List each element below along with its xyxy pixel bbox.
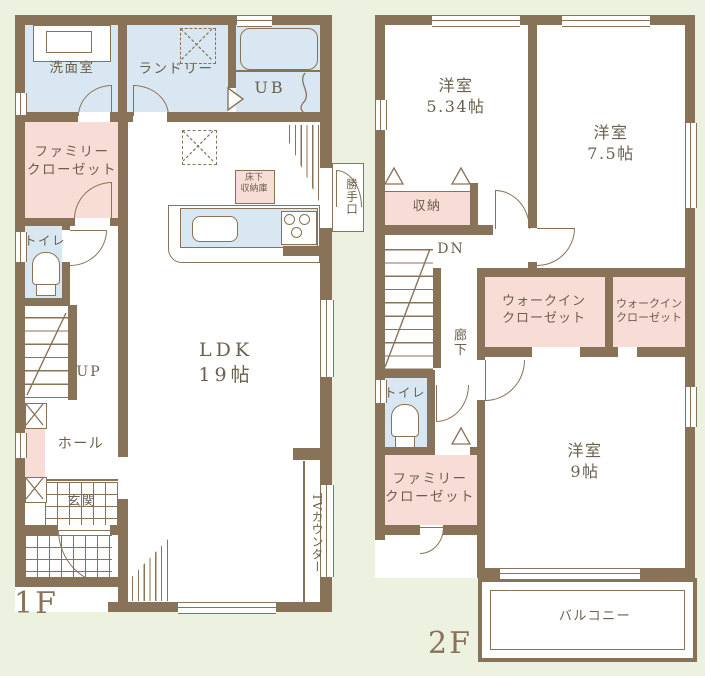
wall [320,15,332,168]
window [685,387,697,427]
wall [528,25,537,228]
folding-door-icon [385,168,403,185]
window [15,433,27,458]
wall [228,25,236,88]
wall [293,448,332,460]
room-label-bath: UB [250,78,290,99]
stove-burner [284,214,295,225]
toilet-icon-2f [391,404,420,449]
room-label-entrance: 玄関 [63,494,101,511]
stove-burner [291,227,302,238]
window [500,568,640,580]
entrance-step-line [45,479,118,481]
room-label-wic1: ウォークイン クローゼット [489,294,599,328]
wall [62,226,70,230]
room-label-ldk: LDK 19帖 [180,338,272,387]
wall [15,218,75,226]
appliance-space-icon [182,130,217,165]
wall [110,525,118,535]
wall [580,347,618,357]
stove-burner [299,214,310,225]
room-label-toilet-1f: トイレ [24,233,66,249]
bath-curtain-line [296,73,310,113]
storage-x-box [25,477,47,503]
room-label-family-closet-1f: ファミリー クローゼット [26,144,118,179]
vanity-bowl [46,31,92,53]
floor1-label: 1F [14,584,74,623]
back-door-label: 勝手口 [336,167,358,227]
room-label-bedroom3: 洋室 9帖 [537,441,633,483]
wall [477,400,485,578]
window [237,15,272,27]
floor-plan: 洗面室 ランドリー UB ファミリー クローゼット トイレ UP ホール 玄関 … [0,0,705,676]
kitchen-sink [192,216,238,242]
sliding-opening [118,456,128,500]
window [375,100,387,130]
wall [68,305,77,400]
toilet-icon-1f [32,252,61,297]
folding-door-icon [452,168,470,185]
underfloor-storage-label: 床下 収納庫 [236,173,272,196]
room-label-bedroom2: 洋室 7.5帖 [563,123,659,165]
room-label-storage-2f: 収納 [399,199,455,216]
wall [110,112,133,122]
vanity-icon [33,25,111,62]
wall [443,525,478,535]
wall [118,498,128,602]
window [178,602,276,614]
toilet-tank [36,284,56,296]
wall [167,112,332,122]
washer-space-icon [180,28,216,64]
bath-partition-line [236,70,320,72]
wall [118,122,128,456]
room-label-toilet-2f: トイレ [384,385,426,401]
wall [15,525,58,535]
stairs-1f-breakline [25,305,68,398]
stairs-up-label: UP [72,363,106,381]
room-label-washroom: 洗面室 [42,60,102,78]
room-label-bedroom1: 洋室 5.34帖 [408,76,504,118]
wall [375,525,420,535]
stove [281,211,317,245]
wall [477,268,695,277]
wall [637,347,695,357]
wall [110,218,118,226]
stairs-2f-breakline [383,237,433,372]
corridor-label: 廊下 [445,318,465,366]
wall [427,370,435,455]
window [562,15,650,27]
wall [15,15,330,25]
room-label-family-closet-2f: ファミリー クローゼット [385,471,475,506]
room-label-hall: ホール [51,435,111,453]
bathtub-icon [240,28,318,70]
toilet-bowl [391,404,419,437]
shoe-cabinet [25,427,45,477]
wall [375,447,430,455]
bath-folding-door-icon [228,88,244,112]
wall [483,347,532,357]
storage-x-box [25,403,47,429]
balcony-label: バルコニー [540,609,650,626]
wall [283,246,332,256]
stairs-down-label: DN [433,240,469,258]
window [432,15,520,27]
folding-door-icon [452,428,470,445]
room-label-laundry: ランドリー [132,61,220,79]
wall [320,228,332,300]
room-label-wic2: ウォークイン クローゼット [611,297,687,326]
window [320,300,334,377]
floor2-label: 2F [428,624,488,663]
wall [433,268,441,368]
toilet-bowl [32,252,60,285]
wall [118,25,127,112]
wall [477,277,485,360]
window [15,93,27,115]
window [685,123,697,208]
wall [470,183,478,235]
tv-counter-label: TVカウンター [305,468,323,598]
